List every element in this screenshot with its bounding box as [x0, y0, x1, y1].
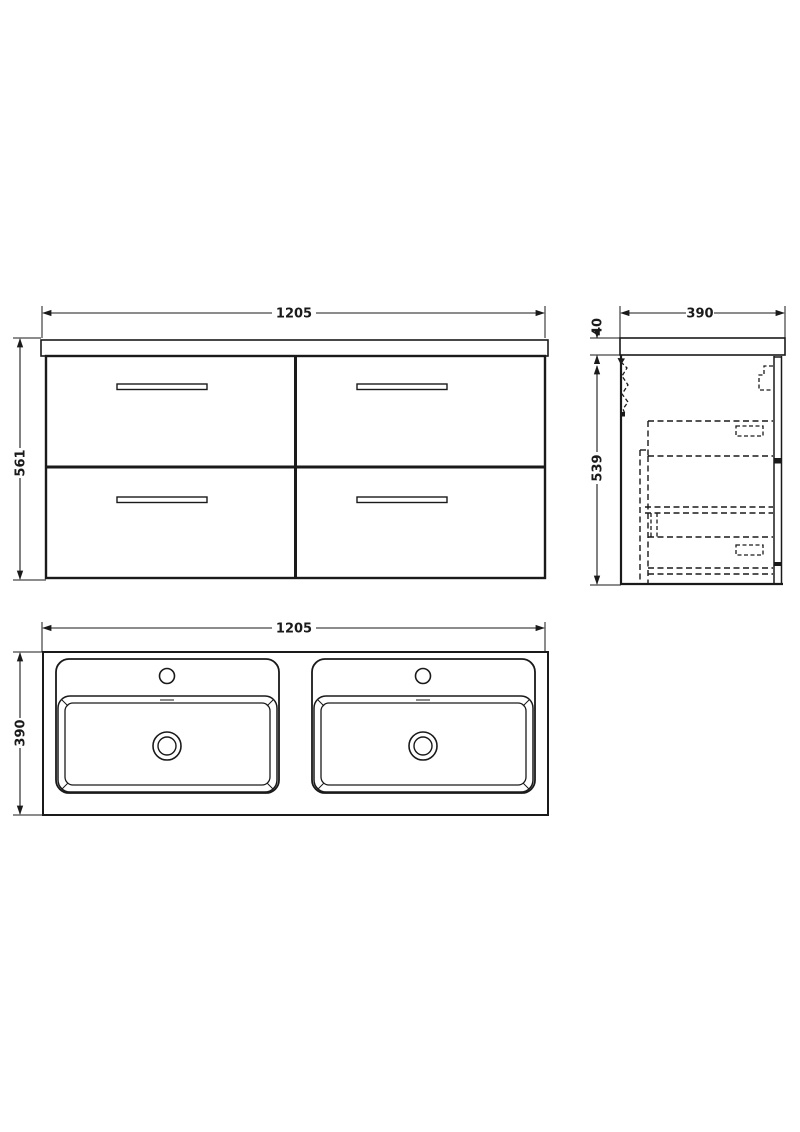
bowl-outer-edge [58, 696, 277, 792]
worktop-side [620, 338, 785, 355]
back-panel-joint-block [774, 458, 783, 464]
lower-drawer-bracket [736, 545, 763, 555]
bowl-corner-ticks [62, 700, 273, 789]
basin-outer-rim [56, 659, 279, 793]
bowl-corner-ticks [318, 700, 529, 789]
front-elevation-view: 1205 561 [13, 306, 548, 580]
waste-drain-outer-right [409, 732, 437, 760]
side-depth-dimension: 390 [620, 306, 785, 338]
front-height-dimension: 561 [13, 338, 46, 580]
tap-hole-left [160, 669, 175, 684]
side-depth-label: 390 [686, 307, 713, 322]
basin-left [56, 659, 279, 793]
drawer-handle-bottom-left [117, 497, 207, 503]
basin-right [312, 659, 535, 793]
hanger-arrow [618, 358, 626, 365]
front-width-dimension: 1205 [42, 306, 545, 338]
worktop-thickness-dimension: 40 [590, 318, 621, 363]
wall-hanger-hidden-left [618, 358, 629, 417]
bowl-inner-edge [321, 703, 526, 785]
drawer-handle-top-right [357, 384, 447, 390]
upper-drawer-bracket [736, 426, 763, 436]
front-width-label: 1205 [276, 307, 312, 322]
plan-view: 1205 390 [13, 622, 548, 816]
tap-hole-right [416, 669, 431, 684]
hanger-foot [621, 412, 626, 417]
bowl-outer-edge [314, 696, 533, 792]
plan-depth-dimension: 390 [13, 652, 43, 815]
worktop-thickness-label: 40 [591, 318, 606, 336]
waste-drain-inner-left [158, 737, 176, 755]
bowl-inner-edge [65, 703, 270, 785]
plan-width-dimension: 1205 [42, 622, 545, 653]
plan-width-label: 1205 [276, 622, 312, 637]
hidden-drawer-lines [640, 421, 773, 583]
vanity-unit-technical-drawing: 1205 561 390 [0, 0, 800, 1132]
waste-drain-outer-left [153, 732, 181, 760]
worktop-front [41, 340, 548, 356]
waste-drain-inner-right [414, 737, 432, 755]
drawer-handle-top-left [117, 384, 207, 390]
worktop-plan [43, 652, 548, 815]
cabinet-height-label: 539 [591, 454, 606, 481]
side-section-view: 390 40 539 [590, 306, 785, 585]
drawer-handle-bottom-right [357, 497, 447, 503]
front-height-label: 561 [14, 449, 29, 476]
basin-outer-rim [312, 659, 535, 793]
wall-bracket-hidden-right [759, 366, 773, 390]
back-panel-joint-block [774, 562, 783, 566]
cabinet-height-dimension: 539 [590, 366, 621, 585]
technical-drawing-canvas: 1205 561 390 [0, 0, 800, 1132]
plan-depth-label: 390 [14, 719, 29, 746]
